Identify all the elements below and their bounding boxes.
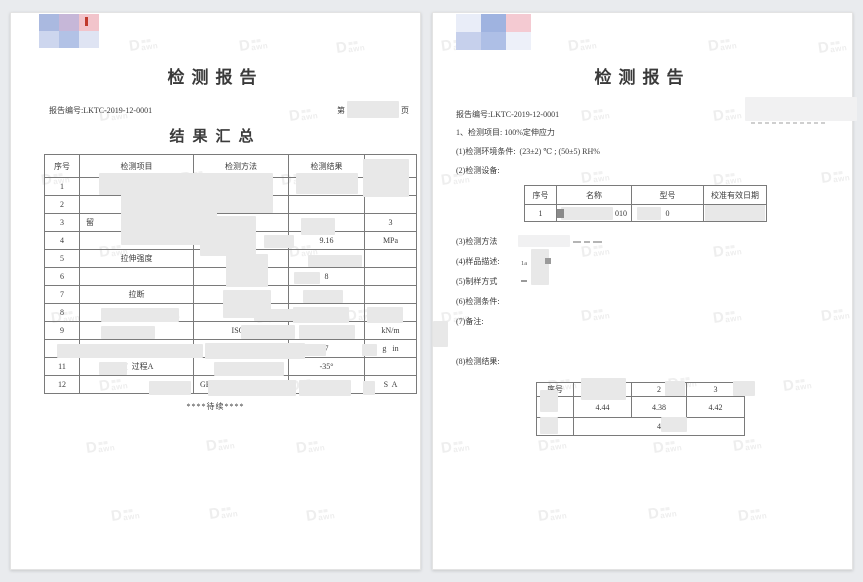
redaction-patch <box>208 380 296 396</box>
ink-mark <box>557 209 564 218</box>
watermark-letter: D <box>305 510 317 523</box>
watermark-column: awn <box>307 439 326 453</box>
summary-cell-unit: MPa <box>365 232 417 250</box>
col-header-calibration: 校准有效日期 <box>704 186 767 205</box>
report-page-1: 检测报告 报告编号:LKTC-2019-12-0001 第 页 结果汇总 序号 … <box>10 12 421 570</box>
to-be-continued-note: ****待续**** <box>11 401 420 412</box>
watermark-letter: D <box>288 110 300 123</box>
watermark-column: awn <box>664 439 683 453</box>
watermark-text: awn <box>593 248 611 257</box>
summary-cell-no: 7 <box>45 286 80 304</box>
watermark-letter: D <box>580 172 592 185</box>
watermark-letter: D <box>110 510 122 523</box>
ink-mark <box>85 17 88 26</box>
equipment-header-row: 序号 名称 型号 校准有效日期 <box>525 186 767 205</box>
watermark-text: awn <box>251 42 269 51</box>
watermark-tiny-glyphs <box>318 508 334 513</box>
watermark-text: awn <box>123 512 141 521</box>
company-logo-redacted <box>456 14 531 50</box>
summary-cell-unit <box>365 286 417 304</box>
ink-mark <box>584 241 590 243</box>
redaction-patch <box>367 307 403 323</box>
watermark-tiny-glyphs <box>593 308 609 313</box>
test-condition-line: (6)检测条件: <box>456 296 500 307</box>
watermark-column: awn <box>122 507 141 521</box>
watermark-column: awn <box>832 307 851 321</box>
watermark-text: awn <box>725 176 743 185</box>
dawn-watermark: Dawn <box>567 37 597 53</box>
redaction-patch <box>705 205 765 221</box>
watermark-tiny-glyphs <box>251 38 267 43</box>
watermark-tiny-glyphs <box>141 38 157 43</box>
watermark-text: awn <box>318 512 336 521</box>
logo-pixel-block <box>456 32 481 50</box>
dawn-watermark: Dawn <box>238 37 268 53</box>
logo-pixel-block <box>39 31 59 48</box>
logo-pixel-block <box>79 31 99 48</box>
redaction-patch <box>99 362 127 375</box>
watermark-text: awn <box>593 312 611 321</box>
redaction-patch <box>299 380 351 396</box>
result-value-2: 4.38 <box>632 397 687 418</box>
redaction-patch <box>294 272 320 284</box>
redaction-patch <box>299 325 355 339</box>
watermark-column: awn <box>220 505 239 519</box>
dawn-watermark: Dawn <box>288 107 318 123</box>
watermark-tiny-glyphs <box>725 244 741 249</box>
logo-pixel-block <box>59 14 79 31</box>
dawn-watermark: Dawn <box>647 505 677 521</box>
watermark-letter: D <box>732 440 744 453</box>
result-header-row: 序号 1 2 3 <box>537 383 745 397</box>
redaction-patch <box>214 362 284 376</box>
watermark-column: awn <box>724 309 743 323</box>
logo-pixel-block <box>481 32 506 50</box>
watermark-letter: D <box>440 40 452 53</box>
watermark-tiny-glyphs <box>750 508 766 513</box>
watermark-tiny-glyphs <box>453 440 469 445</box>
watermark-text: awn <box>453 444 471 453</box>
redaction-patch <box>531 249 549 285</box>
dawn-watermark: Dawn <box>820 169 850 185</box>
ink-mark <box>807 122 811 124</box>
watermark-text: awn <box>218 442 236 451</box>
dawn-watermark: Dawn <box>580 169 610 185</box>
watermark-letter: D <box>208 508 220 521</box>
watermark-column: awn <box>794 377 813 391</box>
col-header-name: 名称 <box>557 186 632 205</box>
watermark-column: awn <box>592 107 611 121</box>
watermark-letter: D <box>537 510 549 523</box>
watermark-letter: D <box>580 246 592 259</box>
dawn-watermark: Dawn <box>712 309 742 325</box>
watermark-tiny-glyphs <box>550 508 566 513</box>
redaction-patch <box>637 207 661 220</box>
watermark-letter: D <box>652 442 664 455</box>
watermark-letter: D <box>580 310 592 323</box>
page-number-prefix: 第 <box>337 105 345 116</box>
document-viewer-canvas: { "watermark": {"big": "D", "text": "awn… <box>0 0 863 582</box>
redaction-patch <box>303 290 343 303</box>
watermark-text: awn <box>580 42 598 51</box>
summary-cell-unit <box>365 196 417 214</box>
dawn-watermark: Dawn <box>205 437 235 453</box>
dawn-watermark: Dawn <box>782 377 812 393</box>
dawn-watermark: Dawn <box>537 437 567 453</box>
summary-cell-no: 6 <box>45 268 80 286</box>
watermark-letter: D <box>712 246 724 259</box>
dawn-watermark: Dawn <box>110 507 140 523</box>
watermark-text: awn <box>750 512 768 521</box>
dawn-watermark: Dawn <box>712 107 742 123</box>
logo-pixel-block <box>39 14 59 31</box>
ink-mark <box>521 280 527 282</box>
watermark-text: awn <box>348 44 366 53</box>
redaction-patch <box>661 417 687 432</box>
redaction-patch <box>205 343 305 359</box>
watermark-letter: D <box>205 440 217 453</box>
watermark-column: awn <box>724 107 743 121</box>
dawn-watermark: Dawn <box>335 39 365 55</box>
watermark-text: awn <box>221 510 239 519</box>
redaction-patch <box>363 159 409 197</box>
logo-pixel-block <box>506 32 531 50</box>
redaction-patch <box>561 207 613 220</box>
page-number-suffix: 页 <box>401 105 409 116</box>
watermark-text: awn <box>725 314 743 323</box>
dawn-watermark: Dawn <box>652 439 682 455</box>
sample-description-fragment: 1a <box>521 260 527 267</box>
redaction-patch <box>200 216 256 256</box>
watermark-column: awn <box>724 243 743 257</box>
summary-cell-result: -35° <box>289 358 365 376</box>
watermark-letter: D <box>580 110 592 123</box>
result-table: 序号 1 2 3 测 4.44 4.38 4.42 结 4 <box>536 382 745 436</box>
environment-conditions-line: (1)检测环境条件: (23±2) ℃ ; (50±5) RH% <box>456 146 600 157</box>
watermark-letter: D <box>440 442 452 455</box>
dawn-watermark: Dawn <box>85 439 115 455</box>
watermark-column: awn <box>749 507 768 521</box>
result-final-row: 结 4 <box>537 418 745 436</box>
watermark-letter: D <box>820 172 832 185</box>
redaction-patch <box>540 417 558 434</box>
summary-cell-no: 12 <box>45 376 80 394</box>
summary-cell-unit: 3 <box>365 214 417 232</box>
watermark-tiny-glyphs <box>725 310 741 315</box>
watermark-letter: D <box>128 40 140 53</box>
redaction-patch <box>362 344 377 356</box>
ink-mark <box>821 122 825 124</box>
watermark-text: awn <box>301 112 319 121</box>
summary-cell-no: 4 <box>45 232 80 250</box>
redaction-patch <box>298 344 326 356</box>
watermark-text: awn <box>795 382 813 391</box>
page-title: 检测报告 <box>11 63 420 88</box>
watermark-column: awn <box>140 37 159 51</box>
logo-pixel-block <box>79 14 99 31</box>
remark-line: (7)备注: <box>456 316 484 327</box>
watermark-tiny-glyphs <box>745 438 761 443</box>
watermark-letter: D <box>295 442 307 455</box>
redaction-patch <box>241 325 295 339</box>
dawn-watermark: Dawn <box>580 107 610 123</box>
watermark-tiny-glyphs <box>593 108 609 113</box>
logo-pixel-block <box>506 14 531 32</box>
watermark-column: awn <box>592 169 611 183</box>
summary-cell-no: 11 <box>45 358 80 376</box>
watermark-text: awn <box>725 112 743 121</box>
dawn-watermark: Dawn <box>440 439 470 455</box>
watermark-column: awn <box>832 169 851 183</box>
redaction-patch <box>433 321 448 347</box>
redaction-patch <box>264 235 294 248</box>
redaction-patch <box>293 307 349 323</box>
watermark-tiny-glyphs <box>725 172 741 177</box>
watermark-text: awn <box>593 174 611 183</box>
ink-mark <box>779 122 783 124</box>
watermark-tiny-glyphs <box>98 440 114 445</box>
dawn-watermark: Dawn <box>208 505 238 521</box>
summary-cell-item <box>80 268 194 286</box>
watermark-column: awn <box>549 507 568 521</box>
summary-cell-no: 8 <box>45 304 80 322</box>
watermark-column: awn <box>719 37 738 51</box>
watermark-column: awn <box>250 37 269 51</box>
page-title: 检测报告 <box>433 63 852 88</box>
dawn-watermark: Dawn <box>712 243 742 259</box>
col-header-no: 序号 <box>525 186 557 205</box>
company-logo-redacted <box>39 14 99 48</box>
sample-prep-line: (5)制样方式 <box>456 276 497 287</box>
watermark-tiny-glyphs <box>123 508 139 513</box>
watermark-letter: D <box>238 40 250 53</box>
watermark-text: awn <box>593 112 611 121</box>
equipment-no: 1 <box>525 205 557 222</box>
watermark-text: awn <box>720 42 738 51</box>
summary-cell-item: 拉伸强度 <box>80 250 194 268</box>
summary-cell-no: 1 <box>45 178 80 196</box>
report-number: 报告编号:LKTC-2019-12-0001 <box>49 105 152 116</box>
test-item-line: 1、检测项目: 100%定伸应力 <box>456 127 555 138</box>
result-final-value: 4 <box>574 418 745 436</box>
watermark-column: awn <box>452 439 471 453</box>
watermark-letter: D <box>567 40 579 53</box>
watermark-letter: D <box>712 312 724 325</box>
dawn-watermark: Dawn <box>537 507 567 523</box>
watermark-tiny-glyphs <box>833 308 849 313</box>
summary-cell-no: 2 <box>45 196 80 214</box>
dawn-watermark: Dawn <box>295 439 325 455</box>
ink-mark <box>751 122 755 124</box>
watermark-tiny-glyphs <box>550 438 566 443</box>
watermark-text: awn <box>550 512 568 521</box>
summary-cell-no: 5 <box>45 250 80 268</box>
watermark-text: awn <box>745 442 763 451</box>
watermark-text: awn <box>98 444 116 453</box>
ink-mark <box>758 122 762 124</box>
redaction-patch <box>540 390 558 412</box>
summary-cell-unit <box>365 268 417 286</box>
watermark-column: awn <box>549 437 568 451</box>
ink-mark <box>800 122 804 124</box>
section-title-results-summary: 结果汇总 <box>11 125 420 146</box>
dawn-watermark: Dawn <box>820 307 850 323</box>
watermark-column: awn <box>724 171 743 185</box>
watermark-column: awn <box>300 107 319 121</box>
watermark-letter: D <box>820 310 832 323</box>
watermark-letter: D <box>537 440 549 453</box>
redaction-patch <box>101 308 179 322</box>
col-header-model: 型号 <box>632 186 704 205</box>
watermark-text: awn <box>725 248 743 257</box>
result-values-row: 测 4.44 4.38 4.42 <box>537 397 745 418</box>
ink-mark <box>793 122 797 124</box>
redaction-patch <box>296 173 358 194</box>
summary-cell-item: 拉断 <box>80 286 194 304</box>
watermark-text: awn <box>665 444 683 453</box>
redaction-patch <box>363 381 375 395</box>
watermark-tiny-glyphs <box>348 40 364 45</box>
watermark-column: awn <box>592 307 611 321</box>
watermark-letter: D <box>817 42 829 55</box>
watermark-letter: D <box>647 508 659 521</box>
redaction-patch <box>226 254 268 287</box>
summary-cell-no: 3 <box>45 214 80 232</box>
dawn-watermark: Dawn <box>732 437 762 453</box>
watermark-tiny-glyphs <box>725 108 741 113</box>
watermark-tiny-glyphs <box>665 440 681 445</box>
report-number: 报告编号:LKTC-2019-12-0001 <box>456 109 559 120</box>
redaction-patch <box>745 97 857 121</box>
redaction-patch <box>518 235 570 247</box>
redaction-patch <box>665 381 685 396</box>
watermark-tiny-glyphs <box>301 108 317 113</box>
watermark-tiny-glyphs <box>453 310 469 315</box>
watermark-tiny-glyphs <box>593 244 609 249</box>
dawn-watermark: Dawn <box>128 37 158 53</box>
watermark-letter: D <box>335 42 347 55</box>
redaction-patch <box>149 381 191 395</box>
watermark-tiny-glyphs <box>221 506 237 511</box>
report-page-2: 检测报告 报告编号:LKTC-2019-12-0001 1、检测项目: 100%… <box>432 12 853 570</box>
watermark-text: awn <box>660 510 678 519</box>
redaction-patch <box>57 344 203 358</box>
watermark-tiny-glyphs <box>795 378 811 383</box>
watermark-column: awn <box>217 437 236 451</box>
watermark-text: awn <box>833 174 851 183</box>
watermark-text: awn <box>141 42 159 51</box>
ink-mark <box>545 258 551 264</box>
ink-mark <box>573 241 581 243</box>
col-header-no: 序号 <box>45 155 80 178</box>
watermark-column: awn <box>829 39 848 53</box>
ink-mark <box>814 122 818 124</box>
ink-mark <box>593 241 602 243</box>
summary-cell-result <box>289 196 365 214</box>
sample-description-line: (4)样品描述: <box>456 256 500 267</box>
redaction-patch <box>347 101 399 118</box>
watermark-tiny-glyphs <box>593 170 609 175</box>
watermark-tiny-glyphs <box>720 38 736 43</box>
watermark-text: awn <box>453 176 471 185</box>
watermark-tiny-glyphs <box>218 438 234 443</box>
watermark-tiny-glyphs <box>830 40 846 45</box>
summary-cell-unit: kN/m <box>365 322 417 340</box>
watermark-tiny-glyphs <box>580 38 596 43</box>
redaction-patch <box>301 218 335 235</box>
dawn-watermark: Dawn <box>817 39 847 55</box>
result-label: (8)检测结果: <box>456 356 500 367</box>
summary-cell-no: 9 <box>45 322 80 340</box>
watermark-column: awn <box>592 243 611 257</box>
ink-mark <box>765 122 769 124</box>
watermark-text: awn <box>550 442 568 451</box>
ink-mark <box>786 122 790 124</box>
redaction-patch <box>581 378 626 400</box>
equipment-label: (2)检测设备: <box>456 165 500 176</box>
watermark-text: awn <box>308 444 326 453</box>
summary-cell-unit <box>365 358 417 376</box>
logo-pixel-block <box>456 14 481 32</box>
dawn-watermark: Dawn <box>305 507 335 523</box>
watermark-letter: D <box>440 174 452 187</box>
summary-cell-item: 度 过程A <box>80 358 194 376</box>
watermark-text: awn <box>830 44 848 53</box>
ink-mark <box>772 122 776 124</box>
watermark-tiny-glyphs <box>660 506 676 511</box>
watermark-column: awn <box>744 437 763 451</box>
watermark-column: awn <box>579 37 598 51</box>
dawn-watermark: Dawn <box>737 507 767 523</box>
redaction-patch <box>308 255 362 267</box>
logo-pixel-block <box>481 14 506 32</box>
method-line: (3)检测方法 <box>456 236 497 247</box>
watermark-letter: D <box>737 510 749 523</box>
watermark-column: awn <box>317 507 336 521</box>
dawn-watermark: Dawn <box>580 243 610 259</box>
watermark-tiny-glyphs <box>308 440 324 445</box>
watermark-column: awn <box>97 439 116 453</box>
watermark-column: awn <box>347 39 366 53</box>
watermark-letter: D <box>85 442 97 455</box>
summary-cell-unit <box>365 250 417 268</box>
watermark-letter: D <box>712 110 724 123</box>
watermark-text: awn <box>833 312 851 321</box>
watermark-column: awn <box>659 505 678 519</box>
dawn-watermark: Dawn <box>707 37 737 53</box>
watermark-letter: D <box>782 380 794 393</box>
result-value-3: 4.42 <box>687 397 745 418</box>
logo-pixel-block <box>59 31 79 48</box>
watermark-letter: D <box>707 40 719 53</box>
redaction-patch <box>101 326 155 339</box>
redaction-patch <box>733 381 755 396</box>
dawn-watermark: Dawn <box>580 307 610 323</box>
watermark-tiny-glyphs <box>833 170 849 175</box>
